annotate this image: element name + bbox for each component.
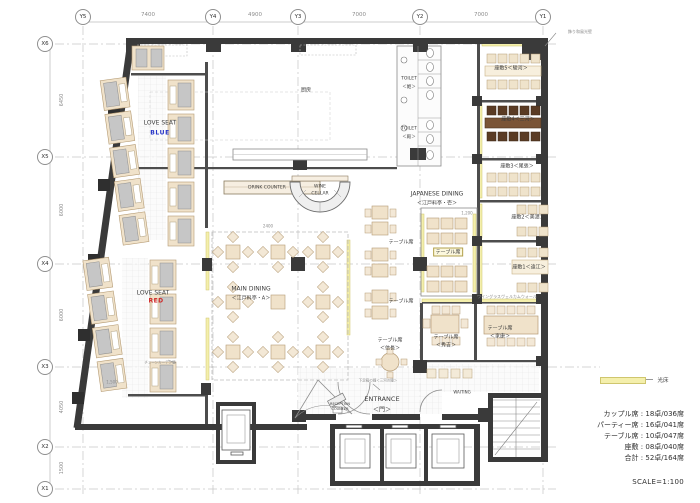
dim-x6-x5: 6450	[59, 94, 65, 107]
legend-label: パーティー席	[597, 421, 639, 429]
dim-x2-x1: 1500	[59, 462, 65, 475]
zashiki3-label: 座敷3＜尾張＞	[500, 163, 533, 170]
toilet-tono-label: TOILET	[401, 127, 417, 132]
light-floor-swatch	[600, 377, 646, 384]
hideyoshi-sublabel: ＜秀吉＞	[436, 342, 456, 349]
zashiki4-tables	[485, 106, 541, 141]
legend-row: 合計 : 52卓/164席	[597, 453, 684, 464]
drink-counter-label: DRINK COUNTER	[248, 186, 286, 191]
scale-label: SCALE=1:100	[597, 477, 684, 488]
legend-row: テーブル席 : 10卓/047席	[597, 431, 684, 442]
reception-label: RECEPTION	[330, 402, 350, 406]
dim-y4-y3: 4900	[248, 12, 262, 18]
legend-row: パーティー席 : 16卓/041席	[597, 420, 684, 431]
kitchen-label: 厨房	[301, 87, 311, 94]
zashiki5-tables	[485, 54, 541, 89]
light-wall-annotation: 飾り和風光壁	[568, 29, 592, 35]
toilet-hime-sublabel: ＜姫＞	[402, 84, 416, 90]
dim-2400: 2400	[263, 224, 273, 229]
legend-value: 16卓/041席	[645, 421, 684, 429]
dim-x4-x3: 6000	[59, 309, 65, 322]
entrance-sublabel: ＜門＞	[373, 405, 391, 414]
legend-label: 合計	[625, 454, 639, 462]
axis-y5: Y5	[75, 9, 91, 25]
ieyasu-label: テーブル席	[488, 325, 513, 332]
axis-y1: Y1	[535, 9, 551, 25]
axis-y2: Y2	[412, 9, 428, 25]
zashiki3-tables	[487, 173, 540, 196]
entrance-bell-annotation: 下足箱の鐘＜三河の鐘＞	[359, 379, 398, 384]
main-dining-sublabel: ＜江戸料亭・A＞	[232, 295, 270, 302]
dim-x3-x2: 4050	[59, 401, 65, 414]
nobunaga-label: テーブル席	[378, 337, 403, 344]
reception-sublabel: COUNTER	[331, 407, 348, 411]
floorplan-drawing	[0, 0, 700, 503]
staircase	[493, 398, 540, 457]
axis-x4: X4	[37, 256, 53, 272]
axis-x2: X2	[37, 439, 53, 455]
legend-label: テーブル席	[604, 432, 639, 440]
axis-x1: X1	[37, 481, 53, 497]
legend-value: 08卓/040席	[645, 443, 684, 451]
legend-row: 座敷 : 08卓/040席	[597, 442, 684, 453]
ieyasu-sublabel: ＜家康＞	[490, 333, 510, 340]
wine-cellar-label-2: CELLAR	[311, 192, 328, 197]
dim-1500: 1,500	[106, 380, 117, 385]
japanese-dining-label: JAPANESE DINING	[411, 191, 464, 198]
dim-y2-y1: 7000	[474, 12, 488, 18]
table-seat-label-a: テーブル席	[389, 239, 414, 246]
dim-y5-y4: 7400	[141, 12, 155, 18]
seat-count-legend: カップル席 : 18卓/036席 パーティー席 : 16卓/041席 テーブル席…	[597, 409, 684, 488]
legend-value: 52卓/164席	[645, 454, 684, 462]
dim-x5-x4: 6000	[59, 204, 65, 217]
waiting-label: WAITING	[453, 390, 470, 395]
chain-wall-annotation: チェーンカーテン壁	[144, 361, 175, 366]
entrance-label: ENTRANCE	[364, 395, 399, 403]
main-dining-label: MAIN DINING	[231, 286, 270, 293]
table-seat-label-b: テーブル席	[389, 298, 414, 305]
love-seat-blue-label: LOVE SEAT	[144, 120, 176, 127]
hideyoshi-label: テーブル席	[434, 334, 459, 341]
legend-label: 座敷	[625, 443, 639, 451]
main-dining-tables	[212, 231, 343, 372]
restaurant-floorplan: Y5 Y4 Y3 Y2 Y1 X6 X5 X4 X3 X2 X1 7400 49…	[0, 0, 700, 503]
japanese-dining-sublabel: ＜江戸料亭・壱＞	[417, 200, 457, 207]
wine-cellar-label-1: WINE	[314, 185, 326, 190]
welcome-wall-annotation: ワイングラスヴェルカムウォール	[477, 294, 537, 300]
zashiki1-label: 座敷1＜遠江＞	[512, 264, 545, 271]
legend-label: カップル席	[604, 410, 639, 418]
light-floor-label: 光床	[657, 376, 668, 384]
legend-value: 18卓/036席	[645, 410, 684, 418]
zashiki5-label: 座敷5＜駿河＞	[494, 65, 527, 72]
toilet-hime-label: TOILET	[401, 77, 417, 82]
axis-x3: X3	[37, 359, 53, 375]
zashiki4-label: 座敷4＜三河＞	[501, 116, 534, 123]
axis-x5: X5	[37, 149, 53, 165]
axis-y3: Y3	[290, 9, 306, 25]
toilet-tono-sublabel: ＜殿＞	[402, 134, 416, 140]
zashiki2-label: 座敷2＜美濃＞	[511, 214, 544, 221]
love-seat-red-label: LOVE SEAT	[137, 290, 169, 297]
axis-x6: X6	[37, 36, 53, 52]
love-seat-blue-color-label: BLUE	[150, 130, 170, 137]
legend-row: カップル席 : 18卓/036席	[597, 409, 684, 420]
dim-1200: 1,200	[461, 211, 472, 216]
light-floor-leader	[646, 379, 653, 380]
dim-y3-y2: 7000	[352, 12, 366, 18]
love-seat-red-color-label: RED	[149, 298, 164, 305]
table-seat-label-boxed: テーブル席	[433, 248, 463, 257]
axis-y4: Y4	[205, 9, 221, 25]
nobunaga-sublabel: ＜信長＞	[380, 345, 400, 352]
legend-value: 10卓/047席	[645, 432, 684, 440]
